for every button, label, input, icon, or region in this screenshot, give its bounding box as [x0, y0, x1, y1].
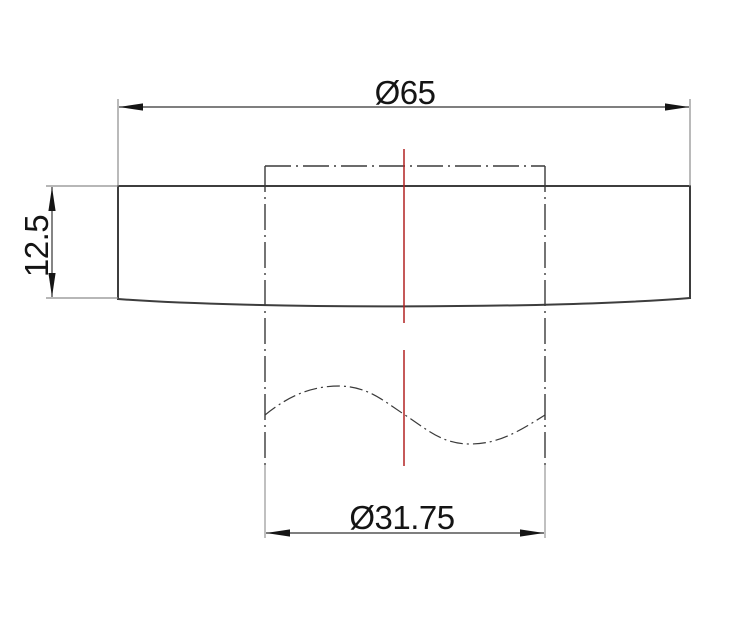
extension-lines — [46, 99, 690, 538]
hidden-hub-lines — [265, 166, 545, 465]
arrow-hub-left — [266, 529, 290, 536]
label-hub-diameter: Ø31.75 — [349, 499, 454, 536]
label-outer-diameter: Ø65 — [375, 74, 436, 111]
label-thickness: 12.5 — [18, 215, 55, 277]
dimension-arrows — [48, 103, 689, 536]
dimension-lines — [52, 107, 689, 533]
arrow-od-left — [119, 103, 143, 110]
arrow-hub-right — [520, 529, 544, 536]
arrow-od-right — [665, 103, 689, 110]
technical-drawing: Ø65 12.5 Ø31.75 — [0, 0, 754, 620]
cad-drawing-viewport: Ø65 12.5 Ø31.75 — [0, 0, 754, 620]
arrow-thickness-top — [48, 187, 55, 211]
break-line — [265, 386, 545, 444]
